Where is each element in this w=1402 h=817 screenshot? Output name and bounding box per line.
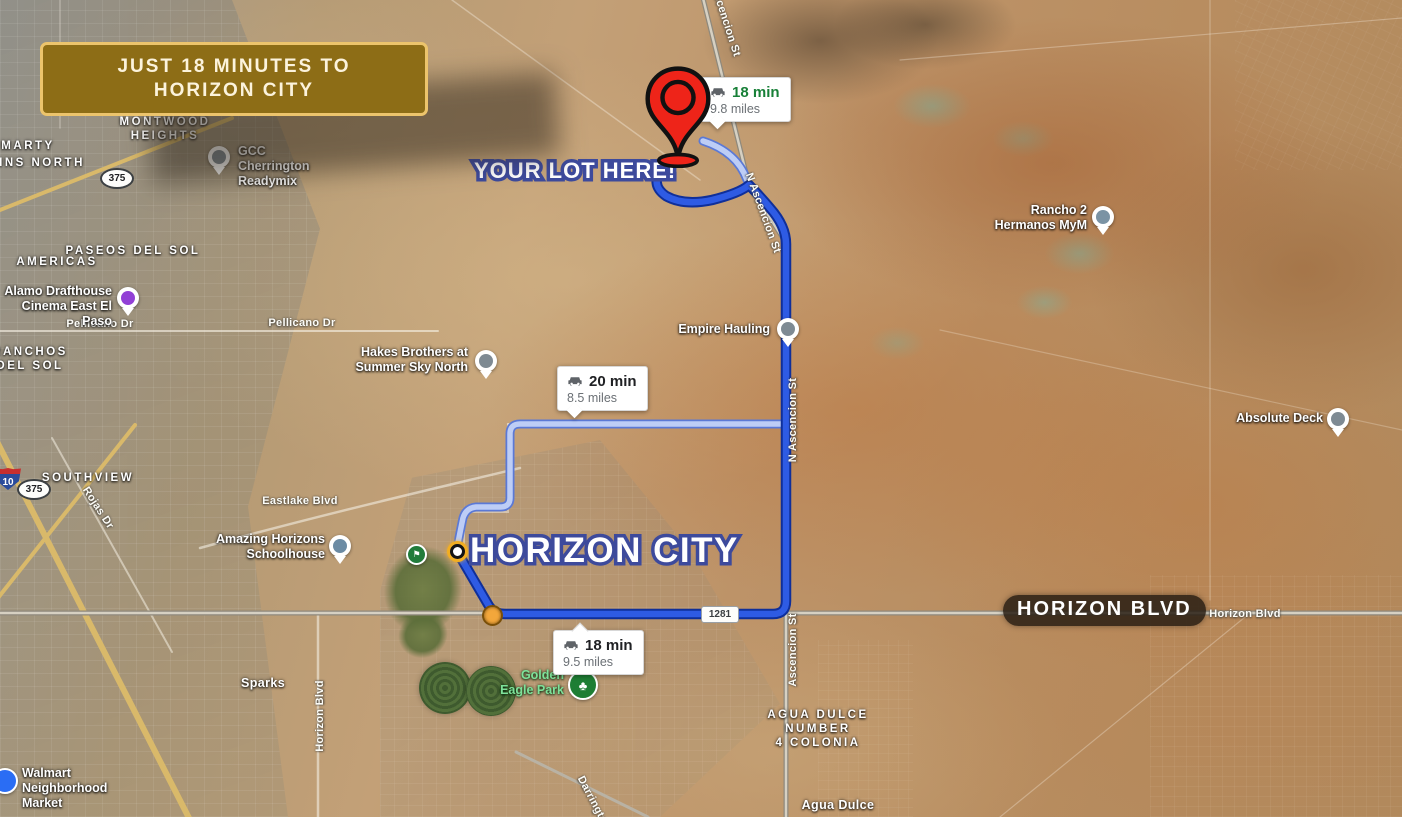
route-badge-18min-bottom[interactable]: 18 min 9.5 miles (553, 630, 644, 675)
loop-375-shield: 375 (100, 168, 134, 189)
poi-pin-icon[interactable] (1092, 206, 1114, 228)
horizon-blvd-callout: HORIZON BLVD (1003, 595, 1206, 626)
road-label: Eastlake Blvd (262, 495, 337, 507)
road-label: N Ascencion St (787, 378, 799, 462)
poi-pin-icon[interactable] (475, 350, 497, 372)
fm-1281-shield: 1281 (701, 606, 739, 623)
poi-pin-icon[interactable] (1327, 408, 1349, 430)
poi-pin-icon[interactable] (777, 318, 799, 340)
road-label: Pellicano Dr (268, 317, 335, 329)
horizon-city-callout: HORIZON CITY HORIZON CITY (470, 531, 739, 571)
route-junction-dot[interactable] (482, 605, 503, 626)
your-lot-pin[interactable] (641, 64, 715, 168)
satellite-map[interactable]: MARTY INS NORTH MONTWOOD HEIGHTS AMERICA… (0, 0, 1402, 817)
area-label: MARTY (1, 139, 54, 153)
banner-line1: JUST 18 MINUTES TO (117, 55, 350, 79)
area-label: RANCHOS DEL SOL (0, 345, 68, 373)
road-label: Horizon Blvd (314, 680, 326, 751)
road-label: Ascencion St (787, 613, 799, 686)
banner-line2: HORIZON CITY (154, 79, 314, 103)
town-label-agua-dulce: Agua Dulce (802, 798, 875, 812)
area-label: INS NORTH (0, 156, 85, 170)
promo-banner: JUST 18 MINUTES TO HORIZON CITY (40, 42, 428, 116)
road-label: Horizon Blvd (1209, 608, 1280, 620)
poi-pin-icon[interactable] (329, 535, 351, 557)
loop-375-shield: 375 (17, 479, 51, 500)
area-label: PASEOS DEL SOL (66, 244, 201, 258)
route-alternate-20min[interactable] (457, 141, 786, 549)
horizon-city-waypoint[interactable] (447, 541, 468, 562)
golf-flag-icon[interactable]: ⚑ (406, 544, 427, 565)
area-label: SOUTHVIEW (42, 471, 134, 485)
poi-pin-icon[interactable] (117, 287, 139, 309)
car-icon (563, 639, 579, 652)
car-icon (567, 375, 583, 388)
area-label: AGUA DULCE NUMBER 4 COLONIA (767, 708, 868, 750)
route-badge-20min[interactable]: 20 min 8.5 miles (557, 366, 648, 411)
town-label-sparks: Sparks (241, 676, 285, 690)
